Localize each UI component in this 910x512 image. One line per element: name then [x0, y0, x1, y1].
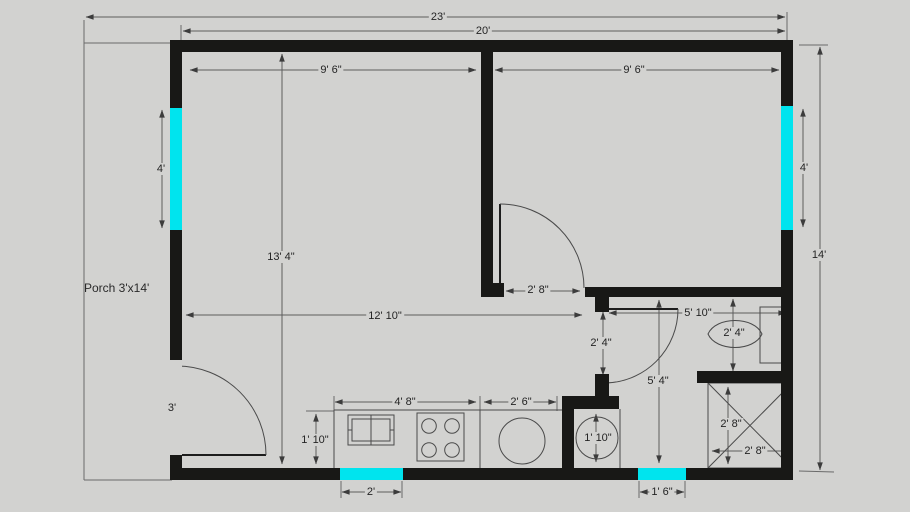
- bathroom-door: [604, 309, 678, 383]
- dim-front-door-width: 3': [166, 402, 178, 414]
- dim-interior-door: 2' 8": [525, 284, 550, 296]
- dim-house-height: 14': [810, 249, 828, 261]
- wall-top: [170, 40, 793, 52]
- interior-door: [500, 204, 584, 288]
- wall-divider-foot: [481, 283, 504, 297]
- dim-room-left-width: 9' 6": [318, 64, 343, 76]
- porch-outline: [84, 43, 172, 480]
- dim-hall-width: 5' 10": [682, 307, 713, 319]
- porch-label: Porch 3'x14': [84, 281, 149, 295]
- wall-bath-stub-top: [595, 297, 609, 312]
- dim-room-right-width: 9' 6": [621, 64, 646, 76]
- dim-counter-right-width: 2' 6": [508, 396, 533, 408]
- wall-room-divider: [481, 52, 493, 285]
- wall-shower-top: [697, 371, 793, 383]
- dim-toilet-width: 2' 4": [721, 327, 746, 339]
- dim-counter-depth: 1' 10": [299, 434, 330, 446]
- window-right: [781, 106, 793, 230]
- dim-washer-width: 1' 10": [582, 432, 613, 444]
- wall-closet-left: [562, 396, 574, 468]
- dim-small-window: 1' 6": [649, 486, 674, 498]
- plan-linework: [0, 0, 910, 512]
- wall-bottom: [170, 468, 793, 480]
- dim-window-right: 4': [798, 162, 810, 174]
- dimension-lines: [86, 17, 820, 492]
- window-kitchen: [340, 468, 403, 480]
- round-fixture-icon: [499, 418, 545, 464]
- dim-bath-door-height: 2' 4": [588, 337, 613, 349]
- dim-overall-width: 23': [429, 11, 447, 23]
- dim-window-left: 4': [155, 163, 167, 175]
- wall-bath-stub-bottom: [595, 374, 609, 398]
- window-left: [170, 108, 182, 230]
- dim-shower-width: 2' 8": [742, 445, 767, 457]
- floor-plan-canvas: Porch 3'x14' 23' 20' 9' 6" 9' 6" 4' 4' 1…: [0, 0, 910, 512]
- dim-living-height: 13' 4": [265, 251, 296, 263]
- dim-hall-height: 5' 4": [645, 375, 670, 387]
- kitchen-sink-icon: [348, 415, 394, 445]
- window-small: [638, 468, 686, 480]
- dim-house-width: 20': [474, 25, 492, 37]
- dim-living-width: 12' 10": [366, 310, 404, 322]
- dim-kitchen-window: 2': [365, 486, 377, 498]
- dim-counter-left-width: 4' 8": [392, 396, 417, 408]
- front-door: [177, 366, 266, 455]
- wall-hall: [585, 287, 793, 297]
- stove-icon: [417, 413, 464, 461]
- dim-shower-height: 2' 8": [718, 418, 743, 430]
